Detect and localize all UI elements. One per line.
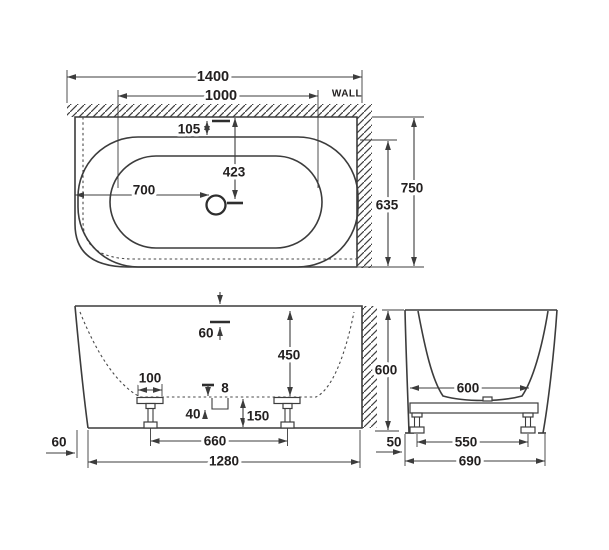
tub-basin-plan xyxy=(110,156,322,248)
dim-front-end-inset: 60 xyxy=(46,430,77,458)
dim-label-635: 635 xyxy=(376,198,399,213)
dim-label-550: 550 xyxy=(455,435,478,450)
dim-plan-drain-to-wall: 423 xyxy=(223,118,246,203)
tub-outline-front xyxy=(75,306,362,428)
dim-side-feet-spacing: 550 xyxy=(417,434,528,450)
dim-plan-rim-inset: 105 xyxy=(178,121,230,137)
dim-label-105: 105 xyxy=(178,122,201,137)
dim-front-basin-depth: 450 xyxy=(278,311,301,396)
dim-label-60-inset: 60 xyxy=(51,435,66,450)
dim-plan-drain-to-end: 700 xyxy=(75,183,209,198)
dim-front-recess-depth: 40 xyxy=(185,407,205,422)
tub-foot-side-right xyxy=(521,413,535,433)
dim-front-foot-plate-width: 100 xyxy=(138,371,162,397)
drain-recess-notch xyxy=(212,398,228,409)
dim-label-1280: 1280 xyxy=(209,454,239,469)
tub-foot-front-right xyxy=(274,398,300,429)
dim-label-423: 423 xyxy=(223,165,246,180)
dim-plan-overall-depth: 750 xyxy=(372,117,424,266)
dim-label-450: 450 xyxy=(278,348,301,363)
dim-label-600-width: 600 xyxy=(457,381,480,396)
technical-drawing-page: 1400 1000 WALL 105 423 700 xyxy=(0,0,609,550)
plan-view: 1400 1000 WALL 105 423 700 xyxy=(67,69,424,268)
dim-label-8: 8 xyxy=(221,381,229,396)
front-view: 60 450 100 8 40 150 xyxy=(46,292,377,469)
dim-label-660: 660 xyxy=(204,434,227,449)
wall-hatch-top xyxy=(67,104,372,117)
dim-label-690: 690 xyxy=(459,454,482,469)
dim-front-recess-width: 8 xyxy=(202,381,229,397)
dim-label-50: 50 xyxy=(386,435,401,450)
dim-plan-length-to-wall: 1000 xyxy=(118,88,318,188)
base-platform xyxy=(410,403,538,413)
tub-foot-front-left xyxy=(137,398,163,429)
drain-side xyxy=(483,397,492,401)
tub-basin-profile-side xyxy=(418,311,548,401)
dim-side-basin-width: 600 xyxy=(410,381,529,396)
dim-label-100: 100 xyxy=(139,371,162,386)
tub-hidden-edge-front xyxy=(80,312,354,397)
dim-label-600-height: 600 xyxy=(375,363,398,378)
wall-label: WALL xyxy=(332,89,362,100)
side-view: 600 600 50 550 690 xyxy=(375,310,557,469)
dim-label-40: 40 xyxy=(185,407,200,422)
dim-side-skirt-offset: 50 xyxy=(376,435,402,453)
dim-label-60-rim: 60 xyxy=(198,326,213,341)
drain-icon xyxy=(207,196,226,215)
dim-front-rim-thickness: 60 xyxy=(198,292,230,341)
dim-label-700: 700 xyxy=(133,183,156,198)
dim-label-1400: 1400 xyxy=(197,69,229,85)
dim-label-150: 150 xyxy=(247,409,270,424)
tub-foot-side-left xyxy=(410,413,424,433)
dim-label-1000: 1000 xyxy=(205,88,237,104)
dim-front-base-clearance: 150 xyxy=(243,399,269,427)
bathtub-dimension-drawing: 1400 1000 WALL 105 423 700 xyxy=(0,0,609,550)
dim-front-feet-spacing: 660 xyxy=(151,428,288,449)
dim-side-overall-height: 600 xyxy=(375,310,404,431)
dim-label-750: 750 xyxy=(401,181,424,196)
